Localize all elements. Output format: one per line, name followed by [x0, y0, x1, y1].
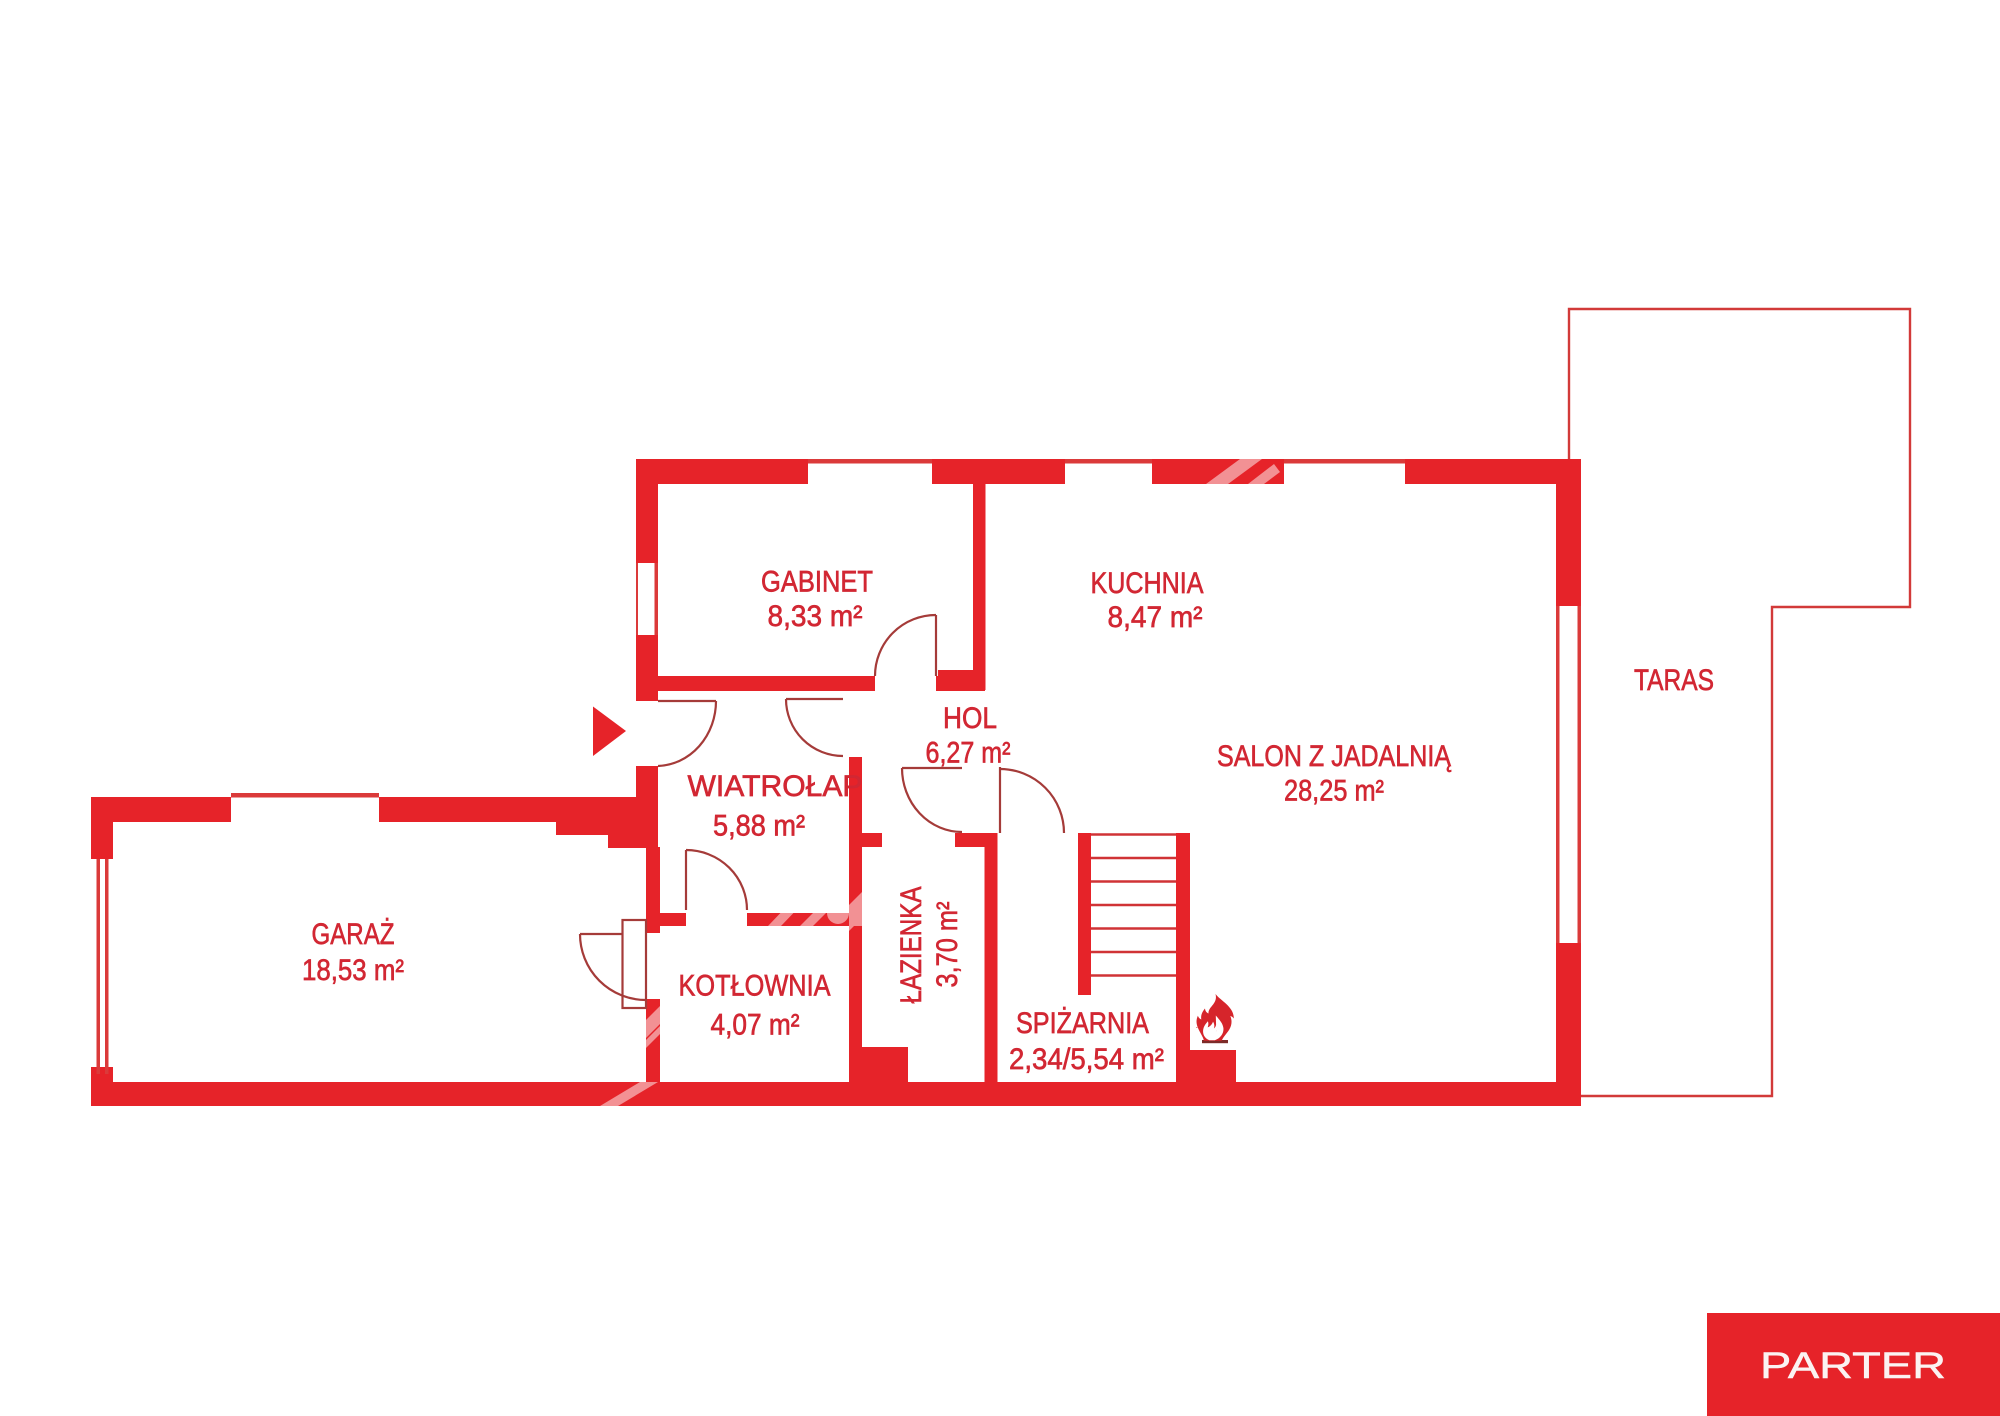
svg-text:8,47 m²: 8,47 m²	[1108, 601, 1203, 634]
svg-text:PARTER: PARTER	[1760, 1345, 1946, 1386]
svg-text:TARAS: TARAS	[1634, 664, 1714, 697]
svg-text:GARAŻ: GARAŻ	[312, 918, 395, 951]
svg-text:5,88 m²: 5,88 m²	[713, 810, 805, 843]
svg-text:SPIŻARNIA: SPIŻARNIA	[1016, 1007, 1149, 1040]
svg-text:HOL: HOL	[943, 702, 997, 735]
svg-text:8,33 m²: 8,33 m²	[768, 600, 863, 633]
svg-text:4,07 m²: 4,07 m²	[711, 1009, 800, 1042]
svg-text:WIATROŁAP: WIATROŁAP	[688, 770, 863, 803]
svg-text:KOTŁOWNIA: KOTŁOWNIA	[679, 970, 831, 1003]
svg-text:GABINET: GABINET	[761, 566, 873, 599]
svg-text:28,25 m²: 28,25 m²	[1284, 775, 1384, 808]
svg-text:18,53 m²: 18,53 m²	[302, 954, 404, 987]
svg-text:2,34/5,54 m²: 2,34/5,54 m²	[1009, 1043, 1164, 1076]
svg-text:ŁAZIENKA: ŁAZIENKA	[895, 887, 928, 1004]
svg-text:3,70 m²: 3,70 m²	[931, 902, 964, 988]
svg-text:SALON Z JADALNIĄ: SALON Z JADALNIĄ	[1217, 740, 1452, 773]
svg-text:6,27 m²: 6,27 m²	[926, 737, 1011, 770]
svg-text:KUCHNIA: KUCHNIA	[1091, 567, 1204, 600]
